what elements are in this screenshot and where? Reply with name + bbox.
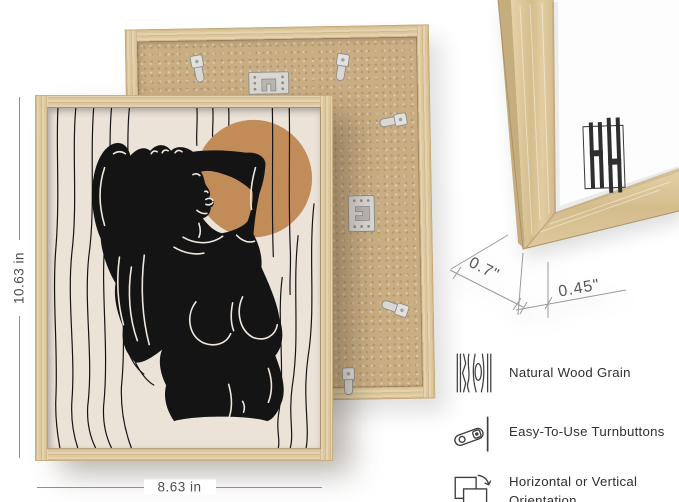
moulding-width-dimension-label: 0.45" <box>557 277 601 301</box>
corner-dimension-lines <box>450 235 626 318</box>
feature-list: Natural Wood Grain Easy-To-Use Turnbutto… <box>450 350 678 502</box>
turnbutton-icon <box>450 409 496 455</box>
sawtooth-hanger <box>348 195 374 231</box>
wood-grain-icon <box>450 350 496 396</box>
turnbutton <box>342 368 354 395</box>
orientation-icon <box>450 468 496 502</box>
abstract-woman-line-art <box>48 108 320 448</box>
turnbutton <box>333 53 350 82</box>
frame-border <box>320 96 332 460</box>
frame-corner-wood <box>498 0 679 249</box>
feature-label: Easy-To-Use Turnbuttons <box>509 422 665 441</box>
turnbutton <box>380 297 410 318</box>
feature-label: Natural Wood Grain <box>509 363 631 382</box>
height-dimension: 10.63 in <box>8 97 32 458</box>
framed-art-front-view <box>35 95 333 461</box>
feature-orientation: Horizontal or Vertical Orientation <box>450 468 678 502</box>
frame-border <box>36 96 48 460</box>
width-dimension-label: 8.63 in <box>143 480 215 495</box>
product-image: 0.7" 0.45" 10.63 in 8.63 in <box>0 0 679 502</box>
turnbutton <box>190 54 207 83</box>
depth-dimension-label: 0.7" <box>466 254 502 284</box>
frame-border <box>36 96 332 108</box>
feature-label: Horizontal or Vertical Orientation <box>509 472 667 502</box>
feature-natural-wood-grain: Natural Wood Grain <box>450 350 678 396</box>
turnbutton <box>379 112 408 129</box>
width-dimension: 8.63 in <box>37 481 322 495</box>
height-dimension-label: 10.63 in <box>12 239 27 315</box>
frame-border <box>36 448 332 460</box>
feature-turnbuttons: Easy-To-Use Turnbuttons <box>450 409 678 455</box>
sawtooth-hanger <box>249 72 289 95</box>
frame-corner-closeup: 0.7" 0.45" <box>430 0 679 330</box>
